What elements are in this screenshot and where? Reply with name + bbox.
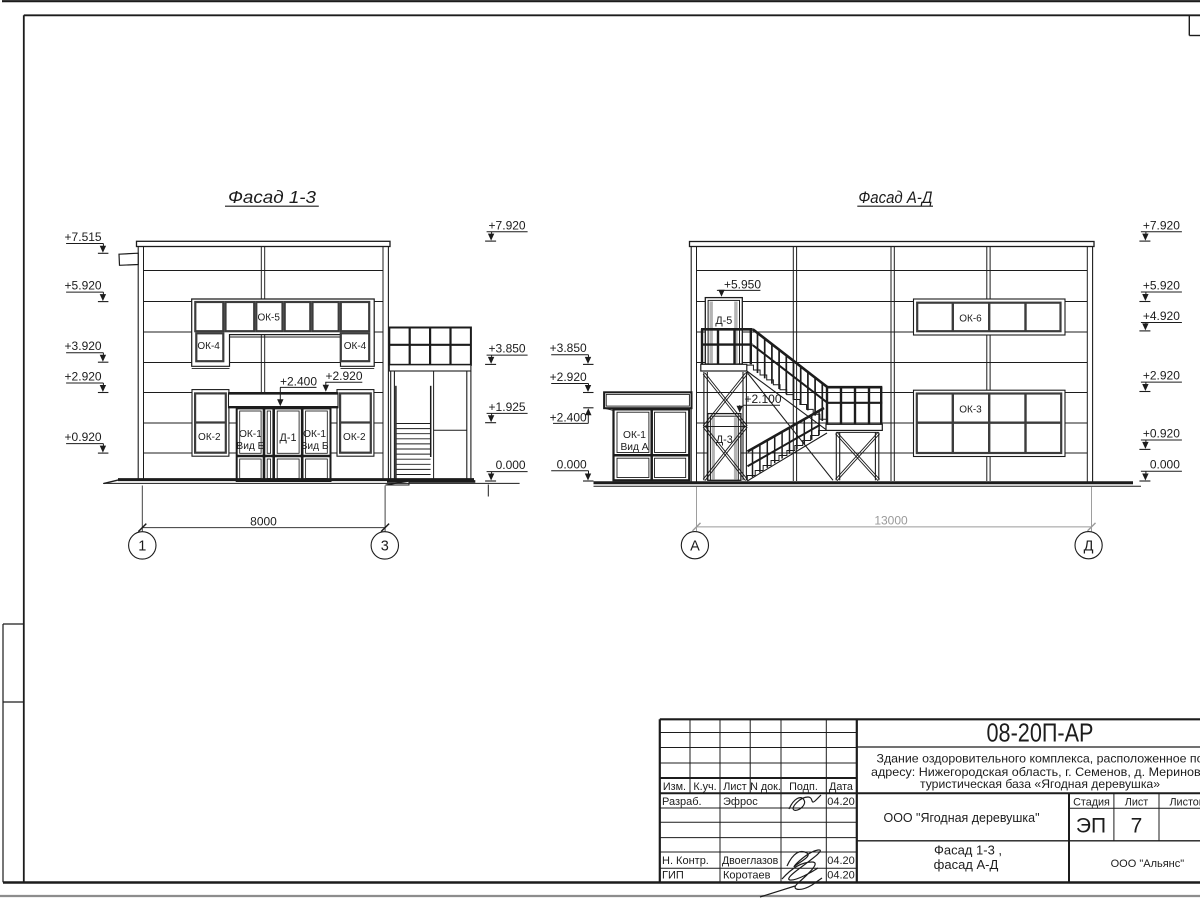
svg-text:+5.950: +5.950 xyxy=(724,277,761,291)
svg-text:А: А xyxy=(690,538,700,554)
svg-text:+2.400: +2.400 xyxy=(550,411,587,425)
svg-text:Здание оздоровительного компле: Здание оздоровительного комплекса, распо… xyxy=(877,753,1200,766)
svg-text:Подп.: Подп. xyxy=(789,781,818,793)
svg-text:+2.920: +2.920 xyxy=(550,370,587,384)
svg-text:+0.920: +0.920 xyxy=(65,430,102,444)
svg-text:Н. Контр.: Н. Контр. xyxy=(662,855,709,867)
svg-text:ОК-3: ОК-3 xyxy=(959,404,982,415)
svg-text:3: 3 xyxy=(381,539,389,555)
svg-text:+4.920: +4.920 xyxy=(1143,309,1180,323)
svg-text:13000: 13000 xyxy=(874,514,908,528)
svg-text:04.20: 04.20 xyxy=(827,870,855,882)
svg-text:+2.100: +2.100 xyxy=(744,392,781,406)
svg-text:04.20: 04.20 xyxy=(827,796,855,808)
svg-text:Дата: Дата xyxy=(829,781,853,793)
svg-text:+1.925: +1.925 xyxy=(489,400,526,414)
svg-text:+2.920: +2.920 xyxy=(1143,369,1180,383)
svg-text:Стадия: Стадия xyxy=(1073,796,1110,808)
svg-text:Д-3: Д-3 xyxy=(716,434,733,446)
svg-text:фасад А-Д: фасад А-Д xyxy=(934,857,999,872)
svg-text:08-20П-АР: 08-20П-АР xyxy=(987,718,1094,748)
svg-text:К.уч.: К.уч. xyxy=(693,781,716,793)
svg-text:0.000: 0.000 xyxy=(496,458,526,472)
svg-text:туристическая база «Ягодная де: туристическая база «Ягодная деревушка» xyxy=(920,778,1161,791)
svg-text:+3.850: +3.850 xyxy=(550,341,587,355)
svg-text:Двоеглазов: Двоеглазов xyxy=(722,855,779,867)
svg-text:ОК-1: ОК-1 xyxy=(303,429,326,440)
svg-text:ОК-4: ОК-4 xyxy=(197,341,220,352)
svg-text:+5.920: +5.920 xyxy=(1143,279,1180,293)
svg-text:ОК-6: ОК-6 xyxy=(959,313,982,324)
svg-text:Д-5: Д-5 xyxy=(715,315,732,327)
svg-text:Фасад 1-3: Фасад 1-3 xyxy=(228,187,316,207)
svg-text:04.20: 04.20 xyxy=(827,855,855,867)
svg-text:Листов: Листов xyxy=(1169,796,1200,808)
svg-text:+2.920: +2.920 xyxy=(325,369,362,383)
svg-text:Д-1: Д-1 xyxy=(280,432,297,444)
svg-text:ОК-1: ОК-1 xyxy=(239,429,262,440)
svg-text:Эфрос: Эфрос xyxy=(723,796,758,808)
svg-text:Вид Б: Вид Б xyxy=(236,441,264,452)
svg-text:Лист: Лист xyxy=(723,781,747,793)
svg-text:Фасад 1-3 ,: Фасад 1-3 , xyxy=(934,843,1002,858)
svg-text:Д: Д xyxy=(1084,538,1094,554)
svg-text:ОК-1: ОК-1 xyxy=(623,430,646,441)
svg-text:ЭП: ЭП xyxy=(1076,814,1106,837)
svg-text:ООО "Альянс": ООО "Альянс" xyxy=(1111,858,1185,870)
svg-text:Фасад А-Д: Фасад А-Д xyxy=(858,189,932,207)
svg-text:ОК-2: ОК-2 xyxy=(343,432,366,443)
svg-text:Вид А: Вид А xyxy=(620,442,648,453)
svg-text:+3.920: +3.920 xyxy=(65,339,102,353)
svg-text:+7.920: +7.920 xyxy=(1143,218,1180,232)
svg-text:ОК-5: ОК-5 xyxy=(257,313,280,324)
svg-text:8000: 8000 xyxy=(250,514,277,528)
svg-text:0.000: 0.000 xyxy=(1150,458,1180,472)
svg-text:+5.920: +5.920 xyxy=(65,279,102,293)
svg-text:+7.515: +7.515 xyxy=(65,230,102,244)
svg-text:+3.850: +3.850 xyxy=(489,342,526,356)
svg-text:ГИП: ГИП xyxy=(662,870,684,882)
svg-text:+2.400: +2.400 xyxy=(280,374,317,388)
svg-text:Вид Б: Вид Б xyxy=(301,441,329,452)
svg-text:Разраб.: Разраб. xyxy=(662,796,702,808)
svg-text:+7.920: +7.920 xyxy=(489,218,526,232)
svg-text:7: 7 xyxy=(1131,814,1143,837)
svg-text:N док.: N док. xyxy=(750,781,781,793)
svg-text:ОК-4: ОК-4 xyxy=(344,341,367,352)
svg-text:ООО "Ягодная деревушка": ООО "Ягодная деревушка" xyxy=(884,810,1040,825)
svg-text:+0.920: +0.920 xyxy=(1143,427,1180,441)
svg-text:Лист: Лист xyxy=(1125,796,1149,808)
svg-text:Коротаев: Коротаев xyxy=(723,870,771,882)
svg-text:ОК-2: ОК-2 xyxy=(198,432,221,443)
svg-text:+2.920: +2.920 xyxy=(65,370,102,384)
svg-text:адресу: Нижегородская область,: адресу: Нижегородская область, г. Семено… xyxy=(871,766,1200,779)
svg-text:1: 1 xyxy=(138,539,146,555)
svg-text:0.000: 0.000 xyxy=(557,457,587,471)
svg-text:Изм.: Изм. xyxy=(663,781,686,793)
